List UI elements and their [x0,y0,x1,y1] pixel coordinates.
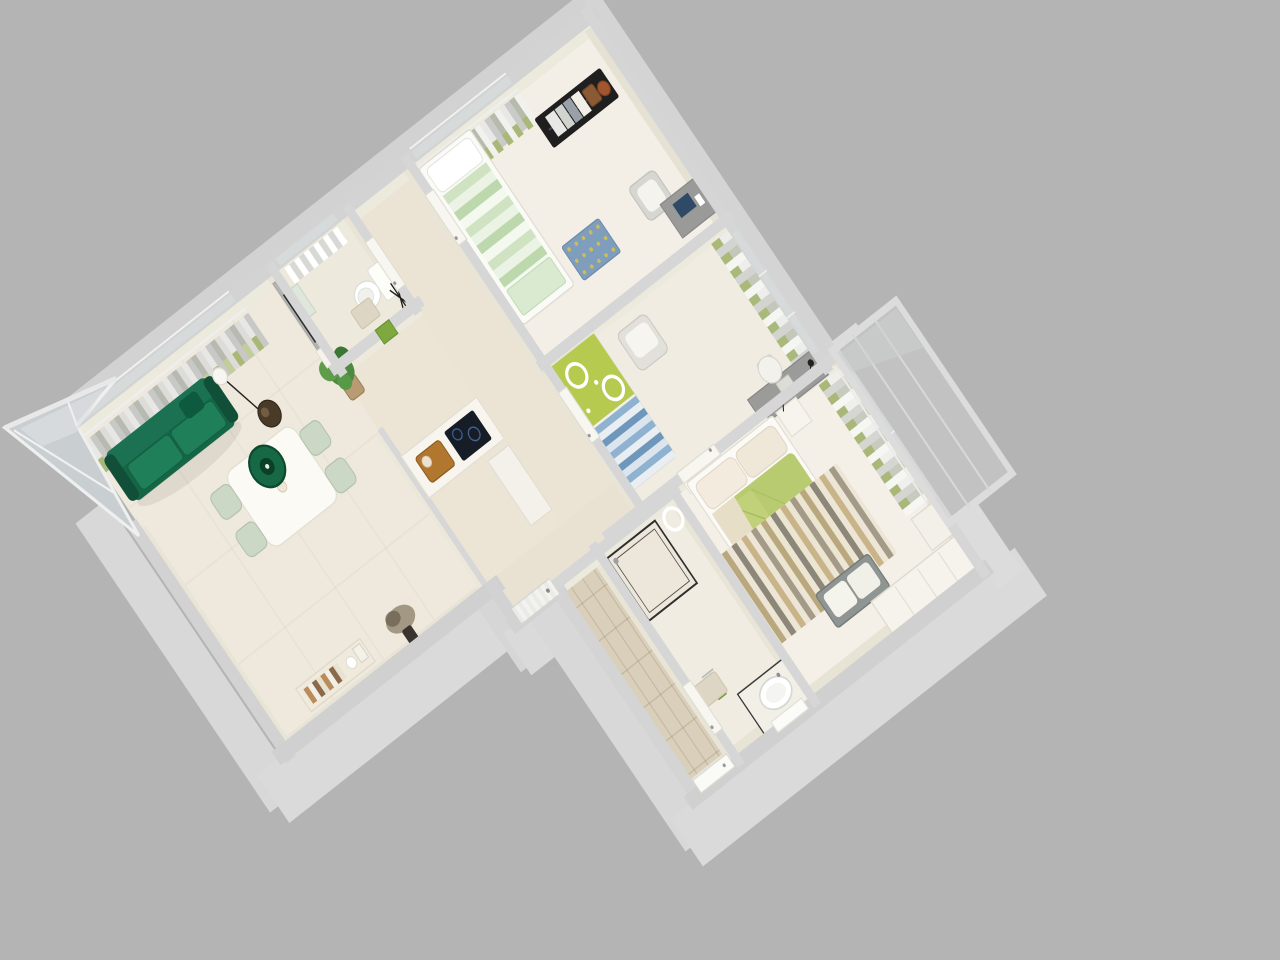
plan-root [5,0,1062,960]
floorplan-svg [0,0,1280,960]
apartment-3d-floorplan [0,0,1280,960]
